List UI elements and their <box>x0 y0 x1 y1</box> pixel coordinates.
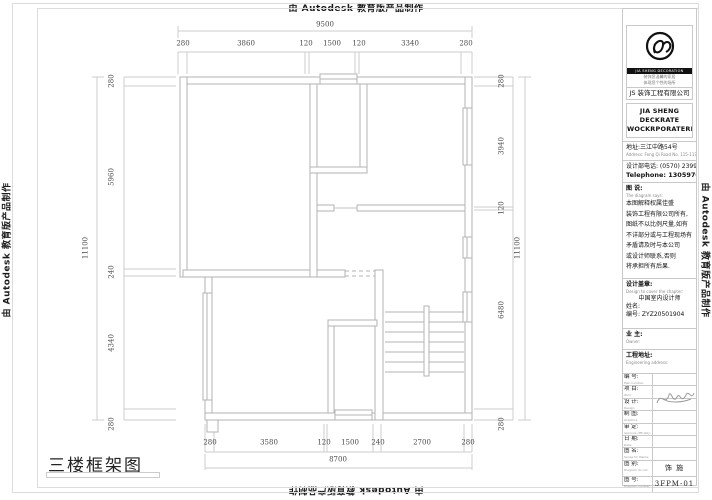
dim-label: 9500 <box>316 22 334 29</box>
row-label: 制 图:Graphics: <box>623 411 653 422</box>
title-rows: 编 号:Plan number: 项 目:Item: 设 计:Design: 制… <box>623 373 696 492</box>
dim-label: 280 <box>109 417 116 430</box>
dim-label: 3340 <box>401 41 419 48</box>
row-label: 项 目:Item: <box>623 386 653 397</box>
row-label: 设 计:Design: <box>623 399 653 410</box>
row-label-en: Approve officially: <box>624 431 651 435</box>
dim-label: 5960 <box>109 168 116 186</box>
row-label-en: Graphics: <box>624 418 651 422</box>
phone-section: 设计部电话: (0570) 2399049 Telephone: 1305970… <box>623 161 696 183</box>
note-line: 不详部分或与工程现场有 <box>626 231 693 242</box>
row-value <box>653 399 696 410</box>
dim-label: 3860 <box>237 41 255 48</box>
row-label: 编 号:Plan number: <box>623 374 653 385</box>
dim-label: 280 <box>461 440 474 447</box>
table-row: 图 别:Diagram do not: 饰 施 <box>623 460 696 476</box>
phone-en: Telephone: 13059700047 <box>626 171 693 180</box>
table-row: 审 定:Approve officially: <box>623 423 696 435</box>
dim-label: 6480 <box>499 301 506 319</box>
address-en: Address: Feng Qi Road No. 115-117 <box>626 152 693 158</box>
row-value <box>653 448 696 459</box>
logo-box: JIA SHENG DECORATION 装饰您温馨的家居 体现您个性的场所 J… <box>626 25 693 100</box>
dim-label: 1500 <box>341 440 359 447</box>
row-label: 图 号:Diagram number: <box>623 477 653 492</box>
row-label-cn: 图 别: <box>624 461 651 468</box>
row-label-cn: 日 期: <box>624 436 651 443</box>
row-label-cn: 图 名: <box>624 448 651 455</box>
seal-designer: 中国室内设计师 <box>626 295 693 303</box>
table-row: 制 图:Graphics: <box>623 410 696 422</box>
dim-label: 240 <box>371 440 384 447</box>
dashed-wall <box>345 271 375 276</box>
company-name-en-line1: JIA SHENG DECKRATE <box>627 107 692 125</box>
note-line: 矛盾请及时与本公司 <box>626 241 693 252</box>
dim-label: 120 <box>317 440 330 447</box>
dim-label: 3940 <box>499 137 506 155</box>
dim-label: 8700 <box>329 457 347 464</box>
row-label-cn: 设 计: <box>624 399 651 406</box>
site-section: 工程地址: Engineering address: <box>623 350 696 373</box>
table-row: 编 号:Plan number: <box>623 373 696 385</box>
row-label-cn: 审 定: <box>624 424 651 431</box>
address-section: 地址:三江中路54号 Address: Feng Qi Road No. 115… <box>623 141 696 161</box>
dim-label: 120 <box>299 41 312 48</box>
row-value <box>653 424 696 435</box>
dim-label: 11100 <box>83 237 90 259</box>
row-label-cn: 项 目: <box>624 386 651 393</box>
company-name-en-line2: WOCKRPORATERKS <box>627 125 692 134</box>
note-line: 或设计师联系,否则 <box>626 252 693 263</box>
site-label-cn: 工程地址: <box>626 352 693 360</box>
company-name-en: JIA SHENG DECKRATE WOCKRPORATERKS <box>627 104 692 137</box>
row-label-en: Diagram number: <box>624 484 651 488</box>
dim-label: 120 <box>499 201 506 214</box>
dim-label: 280 <box>203 440 216 447</box>
table-row: 日 期:Date: <box>623 435 696 447</box>
dim-label: 240 <box>109 265 116 278</box>
windows <box>203 74 472 432</box>
company-name-cn: JS 装饰工程有限公司 <box>627 87 692 99</box>
owner-section: 业 主: Owner: <box>623 329 696 350</box>
dim-label: 11100 <box>515 237 522 259</box>
row-label-cn: 制 图: <box>624 411 651 418</box>
dim-label: 3580 <box>260 440 278 447</box>
row-label-en: Design: <box>624 406 651 410</box>
seal-section: 设计盖章: Design to cover the chapter: 中国室内设… <box>623 279 696 329</box>
seal-label-cn: 设计盖章: <box>626 281 693 289</box>
row-label: 日 期:Date: <box>623 436 653 447</box>
title-block: JIA SHENG DECORATION 装饰您温馨的家居 体现您个性的场所 J… <box>622 8 697 486</box>
owner-label-en: Owner: <box>626 339 693 345</box>
row-label-en: Plan number: <box>624 381 651 385</box>
owner-label-cn: 业 主: <box>626 331 693 339</box>
row-value <box>653 374 696 385</box>
table-row: 图 名:Series for Name: <box>623 447 696 459</box>
drawing-title-underline <box>46 472 160 478</box>
seal-number: 编号: ZYZ20501904 <box>626 311 693 319</box>
notes-title-cn: 图 说: <box>626 185 693 193</box>
row-value <box>653 386 696 397</box>
note-line: 将承担所有后果. <box>626 262 693 273</box>
row-value: 3FPM-01 <box>653 477 696 492</box>
logo-tagline: 体现您个性的场所 <box>627 80 692 86</box>
site-label-en: Engineering address: <box>626 360 693 366</box>
seal-name: 姓名: <box>626 303 693 311</box>
dim-label: 280 <box>499 74 506 87</box>
dim-label: 280 <box>499 417 506 430</box>
row-label-en: Item: <box>624 393 651 397</box>
row-label: 图 名:Series for Name: <box>623 448 653 459</box>
notes-section: 图 说: The diagram says: 本图解释权属佳盛 装饰工程有限公司… <box>623 183 696 279</box>
company-name-en-box: JIA SHENG DECKRATE WOCKRPORATERKS <box>626 103 693 138</box>
row-label-cn: 图 号: <box>624 477 651 484</box>
dim-label: 1500 <box>323 41 341 48</box>
row-label: 图 别:Diagram do not: <box>623 461 653 476</box>
stairs <box>385 306 464 376</box>
company-logo-icon <box>631 28 689 64</box>
row-label-en: Date: <box>624 443 651 447</box>
row-value: 饰 施 <box>653 461 696 476</box>
address-cn: 地址:三江中路54号 <box>626 144 693 152</box>
phone-cn: 设计部电话: (0570) 2399049 <box>626 163 693 171</box>
dim-label: 280 <box>109 74 116 87</box>
note-line: 装饰工程有限公司所有, <box>626 210 693 221</box>
note-line: 图纸不以比例尺量,如有 <box>626 220 693 231</box>
row-value <box>653 436 696 447</box>
dim-label: 280 <box>176 41 189 48</box>
drawing-sheet: 由 Autodesk 教育版产品制作 由 Autodesk 教育版产品制作 由 … <box>0 0 712 500</box>
table-row: 项 目:Item: <box>623 385 696 397</box>
dim-label: 120 <box>352 41 365 48</box>
dim-label: 2700 <box>413 440 431 447</box>
row-value <box>653 411 696 422</box>
row-label-en: Series for Name: <box>624 455 651 459</box>
row-label-en: Diagram do not: <box>624 468 651 472</box>
row-label-cn: 编 号: <box>624 374 651 381</box>
table-row: 设 计:Design: <box>623 398 696 410</box>
row-label: 审 定:Approve officially: <box>623 424 653 435</box>
dim-label: 280 <box>459 41 472 48</box>
table-row: 图 号:Diagram number: 3FPM-01 <box>623 476 696 492</box>
note-line: 本图解释权属佳盛 <box>626 199 693 210</box>
dim-label: 4340 <box>109 334 116 352</box>
